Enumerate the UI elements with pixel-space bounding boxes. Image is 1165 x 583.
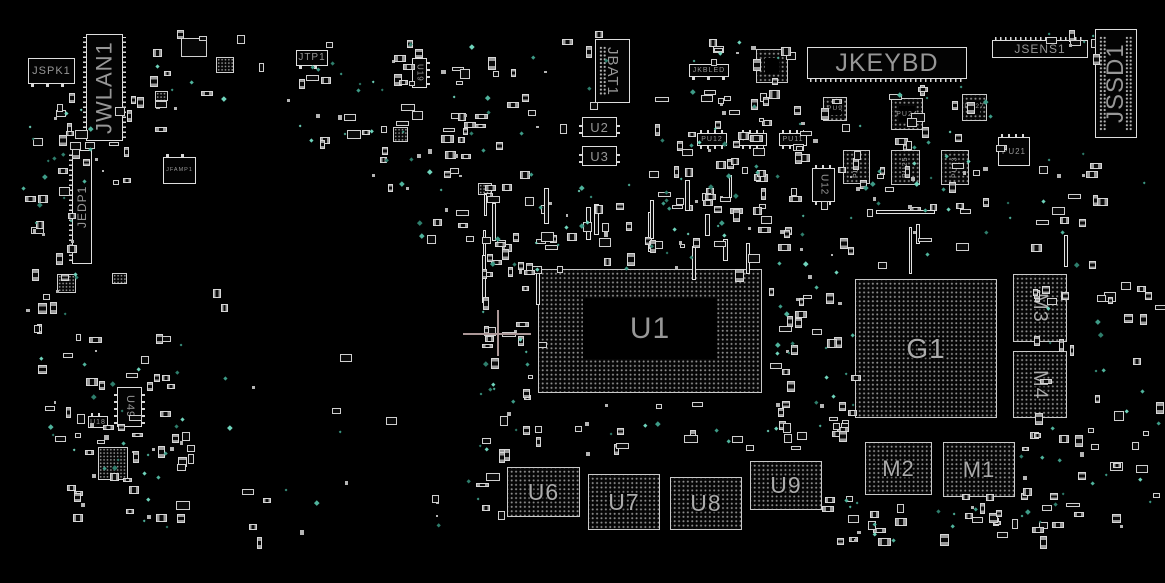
smd-component <box>1057 174 1061 178</box>
via-dot <box>51 434 54 437</box>
smd-component <box>692 246 696 280</box>
via-dot <box>511 400 515 404</box>
via-dot <box>778 262 782 266</box>
smd-component <box>396 121 409 126</box>
smd-component <box>761 216 771 223</box>
smd-component <box>1080 452 1084 456</box>
smd-component <box>675 266 679 270</box>
smd-component <box>33 229 36 232</box>
pin-row <box>617 120 620 134</box>
smd-component <box>711 59 717 66</box>
smd-component <box>155 127 167 133</box>
via-dot <box>477 497 480 500</box>
smd-component <box>486 473 500 481</box>
smd-component <box>878 538 891 546</box>
smd-component <box>287 99 290 102</box>
via-dot <box>660 139 664 143</box>
smd-component <box>164 71 171 77</box>
smd-component <box>162 375 171 381</box>
via-dot <box>779 304 783 308</box>
smd-component <box>249 524 257 530</box>
smd-component <box>1137 286 1146 292</box>
smd-component <box>177 514 185 523</box>
via-dot <box>801 232 805 236</box>
component-u12[interactable]: U12 <box>812 168 835 202</box>
smd-component <box>1120 525 1123 528</box>
smd-component <box>95 350 98 353</box>
smd-component <box>778 244 791 250</box>
via-dot <box>835 270 839 274</box>
via-dot <box>481 148 485 152</box>
smd-component <box>316 114 320 118</box>
smd-component <box>718 98 724 104</box>
smd-component <box>409 81 415 85</box>
smd-component <box>952 101 958 110</box>
smd-component <box>141 356 149 364</box>
smd-component <box>877 174 884 179</box>
smd-component <box>1046 37 1057 44</box>
smd-component <box>482 438 491 444</box>
smd-component <box>856 187 860 191</box>
via-dot <box>1082 152 1085 155</box>
smd-component <box>906 141 913 150</box>
smd-component <box>147 515 150 518</box>
smd-component <box>808 275 812 279</box>
board-canvas[interactable]: JSPK1JWLAN1JEDP1JFAMP1U49U18JTP1U19JBAT1… <box>0 0 1165 583</box>
smd-component <box>493 71 499 77</box>
smd-component <box>1052 522 1063 528</box>
smd-component <box>787 381 795 393</box>
smd-component <box>1140 314 1147 325</box>
smd-component <box>89 337 102 343</box>
smd-component <box>482 269 487 279</box>
smd-component <box>1059 339 1064 352</box>
via-dot <box>856 502 859 505</box>
smd-component <box>672 205 683 209</box>
via-dot <box>519 131 523 135</box>
smd-component <box>586 46 592 57</box>
component-m1[interactable]: M1 <box>943 442 1015 497</box>
smd-component <box>1136 465 1148 474</box>
smd-component <box>386 417 397 425</box>
smd-component <box>332 408 341 415</box>
smd-component <box>432 495 439 503</box>
smd-component <box>682 149 693 156</box>
smd-component <box>839 431 847 442</box>
smd-component <box>99 381 105 390</box>
component-jspk1[interactable]: JSPK1 <box>28 58 75 84</box>
via-dot <box>718 51 722 55</box>
via-dot <box>315 501 320 506</box>
smd-component <box>949 182 956 193</box>
smd-component <box>123 478 132 483</box>
smd-component <box>306 75 319 80</box>
smd-component <box>524 270 535 276</box>
via-dot <box>62 197 65 200</box>
smd-component <box>791 188 797 196</box>
smd-component <box>32 269 39 281</box>
via-dot <box>47 159 50 162</box>
via-dot <box>941 187 945 191</box>
smd-component <box>118 424 125 431</box>
component-u2[interactable]: U2 <box>582 117 617 137</box>
smd-component <box>38 365 46 374</box>
smd-component <box>155 91 168 101</box>
via-dot <box>344 132 347 135</box>
pin-row <box>31 84 72 87</box>
via-dot <box>310 66 315 71</box>
smd-component <box>445 208 448 211</box>
component-g1[interactable]: G1 <box>855 279 997 418</box>
smd-component <box>649 171 659 179</box>
component-jkbled[interactable]: JKBLED <box>689 64 729 77</box>
smd-component <box>488 57 495 70</box>
via-dot <box>37 202 42 207</box>
smd-component <box>1156 402 1164 414</box>
via-dot <box>156 475 160 479</box>
via-dot <box>39 357 43 361</box>
smd-component <box>66 131 74 136</box>
pin-row <box>427 61 430 85</box>
smd-component <box>483 297 488 309</box>
via-dot <box>409 157 413 161</box>
component-jkeybd[interactable]: JKEYBD <box>807 47 967 79</box>
smd-component <box>794 106 801 115</box>
smd-component <box>616 203 624 210</box>
via-dot <box>1105 474 1108 477</box>
smd-component <box>955 134 961 142</box>
via-dot <box>849 506 852 509</box>
component-m4[interactable]: M4 <box>1013 351 1067 418</box>
smd-component <box>826 293 834 304</box>
smd-component <box>150 76 157 87</box>
smd-component <box>1059 435 1069 443</box>
smd-component <box>956 243 969 251</box>
smd-component <box>770 363 782 369</box>
smd-component <box>415 49 423 58</box>
smd-component <box>459 175 462 178</box>
smd-component <box>1070 345 1075 355</box>
smd-component <box>851 375 862 381</box>
smd-component <box>1068 194 1081 199</box>
smd-component <box>854 539 857 542</box>
component-u8[interactable]: U8 <box>670 477 742 530</box>
smd-component <box>842 124 851 133</box>
via-dot <box>221 97 226 102</box>
smd-component <box>382 147 387 155</box>
component-u6[interactable]: U6 <box>507 467 580 517</box>
pin-row <box>1125 36 1133 131</box>
smd-component <box>821 108 828 119</box>
smd-component <box>103 425 114 430</box>
smd-component <box>1090 163 1102 168</box>
smd-component <box>172 434 179 443</box>
smd-component <box>83 159 90 167</box>
via-dot <box>338 430 341 433</box>
smd-component <box>81 503 85 507</box>
smd-component <box>160 411 171 416</box>
smd-component <box>147 382 153 390</box>
smd-component <box>780 230 784 234</box>
smd-component <box>736 52 739 55</box>
smd-component <box>857 531 860 534</box>
smd-component <box>188 454 194 464</box>
via-dot <box>439 189 442 192</box>
pin-row <box>692 77 726 80</box>
via-dot <box>587 86 591 90</box>
smd-component <box>789 196 802 201</box>
component-jfamp1[interactable]: JFAMP1 <box>163 157 196 184</box>
smd-component <box>829 417 839 422</box>
smd-component <box>873 197 877 201</box>
smd-component <box>109 142 119 146</box>
smd-component <box>127 110 132 122</box>
component-u3[interactable]: U3 <box>582 146 617 166</box>
smd-component <box>688 132 695 137</box>
smd-component <box>885 187 894 192</box>
via-dot <box>1041 199 1045 203</box>
smd-component <box>242 489 254 495</box>
smd-component <box>484 194 487 216</box>
smd-component <box>812 329 822 335</box>
smd-component <box>1064 235 1069 267</box>
smd-component <box>516 322 529 327</box>
smd-component <box>124 147 129 156</box>
via-dot <box>892 538 896 542</box>
via-dot <box>1074 262 1079 267</box>
smd-component <box>782 369 790 375</box>
smd-component <box>115 107 124 116</box>
via-dot <box>369 129 374 134</box>
via-dot <box>525 350 528 353</box>
via-dot <box>1143 181 1146 184</box>
smd-component <box>746 445 754 452</box>
smd-component <box>492 203 497 241</box>
smd-component <box>1069 44 1072 47</box>
smd-component <box>733 209 740 222</box>
smd-component <box>34 325 40 333</box>
via-dot <box>690 143 694 147</box>
via-dot <box>309 138 313 142</box>
via-dot <box>679 177 682 180</box>
smd-component <box>791 446 801 451</box>
smd-component <box>708 149 711 152</box>
smd-component <box>1034 433 1042 438</box>
smd-component <box>1133 358 1141 366</box>
component-jtp1[interactable]: JTP1 <box>296 50 328 66</box>
smd-component <box>980 503 985 514</box>
smd-component <box>714 241 727 248</box>
smd-component <box>1112 514 1120 523</box>
smd-component <box>399 80 408 85</box>
smd-component <box>1035 413 1042 425</box>
smd-component <box>996 510 1002 517</box>
smd-component <box>870 511 879 518</box>
smd-component <box>252 386 255 389</box>
smd-component <box>113 180 119 185</box>
via-dot <box>469 44 474 49</box>
component-u49[interactable]: U49 <box>117 387 142 427</box>
smd-component <box>181 38 207 57</box>
smd-component <box>1091 444 1098 450</box>
via-dot <box>52 156 56 160</box>
smd-component <box>822 506 833 513</box>
via-dot <box>1047 32 1050 35</box>
smd-component <box>604 258 611 266</box>
smd-component <box>983 167 987 171</box>
smd-component <box>1032 527 1044 533</box>
smd-component <box>962 494 971 501</box>
smd-component <box>769 90 779 98</box>
smd-component <box>482 344 493 349</box>
smd-component <box>199 36 207 40</box>
smd-component <box>499 452 505 462</box>
smd-component <box>996 145 1005 152</box>
via-dot <box>227 425 232 430</box>
via-dot <box>174 424 178 428</box>
component-jssd1[interactable]: JSSD1 <box>1095 29 1137 138</box>
smd-component <box>973 170 980 176</box>
via-dot <box>165 525 168 528</box>
smd-component <box>1091 39 1096 48</box>
smd-component <box>895 518 907 526</box>
via-dot <box>330 61 335 66</box>
component-label: U2 <box>583 118 616 136</box>
component-label: U1 <box>583 298 717 359</box>
smd-component <box>45 406 55 411</box>
smd-component <box>394 55 407 62</box>
smd-component <box>729 175 732 198</box>
smd-component <box>1040 536 1047 549</box>
pin-row <box>114 390 117 424</box>
smd-component <box>177 464 186 471</box>
smd-component <box>960 209 971 214</box>
via-dot <box>64 312 67 315</box>
via-dot <box>610 433 613 436</box>
smd-component <box>69 93 75 103</box>
component-u9[interactable]: U9 <box>750 461 822 510</box>
via-dot <box>717 225 720 228</box>
via-dot <box>723 234 727 238</box>
via-dot <box>985 231 989 235</box>
smd-component <box>43 294 50 300</box>
smd-component <box>507 102 518 109</box>
via-dot <box>984 99 989 104</box>
smd-component <box>466 236 474 242</box>
smd-component <box>26 309 30 313</box>
component-label: JTP1 <box>297 51 327 65</box>
via-dot <box>666 252 669 255</box>
smd-component <box>590 102 597 110</box>
smd-component <box>538 342 547 348</box>
smd-component <box>59 187 70 196</box>
smd-component <box>655 124 660 137</box>
smd-component <box>406 187 409 190</box>
smd-component <box>753 148 765 156</box>
smd-component <box>549 202 552 205</box>
smd-component <box>599 238 611 246</box>
smd-component <box>1113 463 1121 468</box>
component-m2[interactable]: M2 <box>865 442 932 495</box>
via-dot <box>316 68 320 72</box>
smd-component <box>1108 297 1114 304</box>
via-dot <box>529 172 533 176</box>
smd-component <box>441 135 454 143</box>
smd-component <box>732 436 742 442</box>
component-jwlan1[interactable]: JWLAN1 <box>86 34 123 141</box>
smd-component <box>498 511 504 520</box>
smd-component <box>595 205 603 213</box>
smd-component <box>443 128 455 133</box>
component-jbat1[interactable]: JBAT1 <box>595 39 630 103</box>
component-u1[interactable]: U1 <box>538 269 762 393</box>
via-dot <box>452 95 455 98</box>
component-m3[interactable]: M3 <box>1013 274 1067 342</box>
smd-component <box>58 168 68 174</box>
via-dot <box>479 392 482 395</box>
component-label: JKBLED <box>690 65 728 76</box>
component-label: U12 <box>813 169 834 201</box>
smd-component <box>372 174 375 177</box>
smd-component <box>1089 261 1096 270</box>
smd-component <box>778 408 784 417</box>
smd-component <box>729 110 739 116</box>
smd-component <box>758 227 771 233</box>
via-dot <box>1050 426 1055 431</box>
via-dot <box>775 426 779 430</box>
smd-component <box>85 450 93 456</box>
via-dot <box>83 363 88 368</box>
via-dot <box>1009 217 1012 220</box>
smd-component <box>650 200 654 239</box>
via-dot <box>515 428 518 431</box>
via-dot <box>492 387 495 390</box>
pin-row <box>810 79 964 82</box>
smd-component <box>464 114 467 117</box>
via-dot <box>418 220 423 225</box>
smd-component <box>940 534 948 546</box>
via-dot <box>668 207 672 211</box>
smd-component <box>769 288 774 296</box>
via-dot <box>951 525 956 530</box>
smd-component <box>201 91 214 96</box>
smd-component <box>528 110 536 116</box>
smd-component <box>800 248 803 251</box>
smd-component <box>97 440 105 444</box>
smd-component <box>393 127 408 142</box>
smd-component <box>427 235 436 244</box>
smd-component <box>433 219 442 227</box>
via-dot <box>798 123 801 126</box>
smd-component <box>259 63 264 72</box>
smd-component <box>742 167 747 174</box>
pin-row <box>91 413 105 416</box>
smd-component <box>1121 282 1131 289</box>
smd-component <box>787 316 793 327</box>
smd-component <box>911 177 915 181</box>
smd-component <box>38 303 46 314</box>
smd-component <box>854 151 861 160</box>
pin-row <box>123 37 126 138</box>
via-dot <box>815 285 819 289</box>
smd-component <box>655 97 669 102</box>
smd-component <box>909 227 913 274</box>
smd-component <box>803 295 812 299</box>
component-u7[interactable]: U7 <box>588 474 660 530</box>
smd-component <box>544 188 549 224</box>
smd-component <box>1022 447 1029 452</box>
pin-row <box>142 390 145 424</box>
